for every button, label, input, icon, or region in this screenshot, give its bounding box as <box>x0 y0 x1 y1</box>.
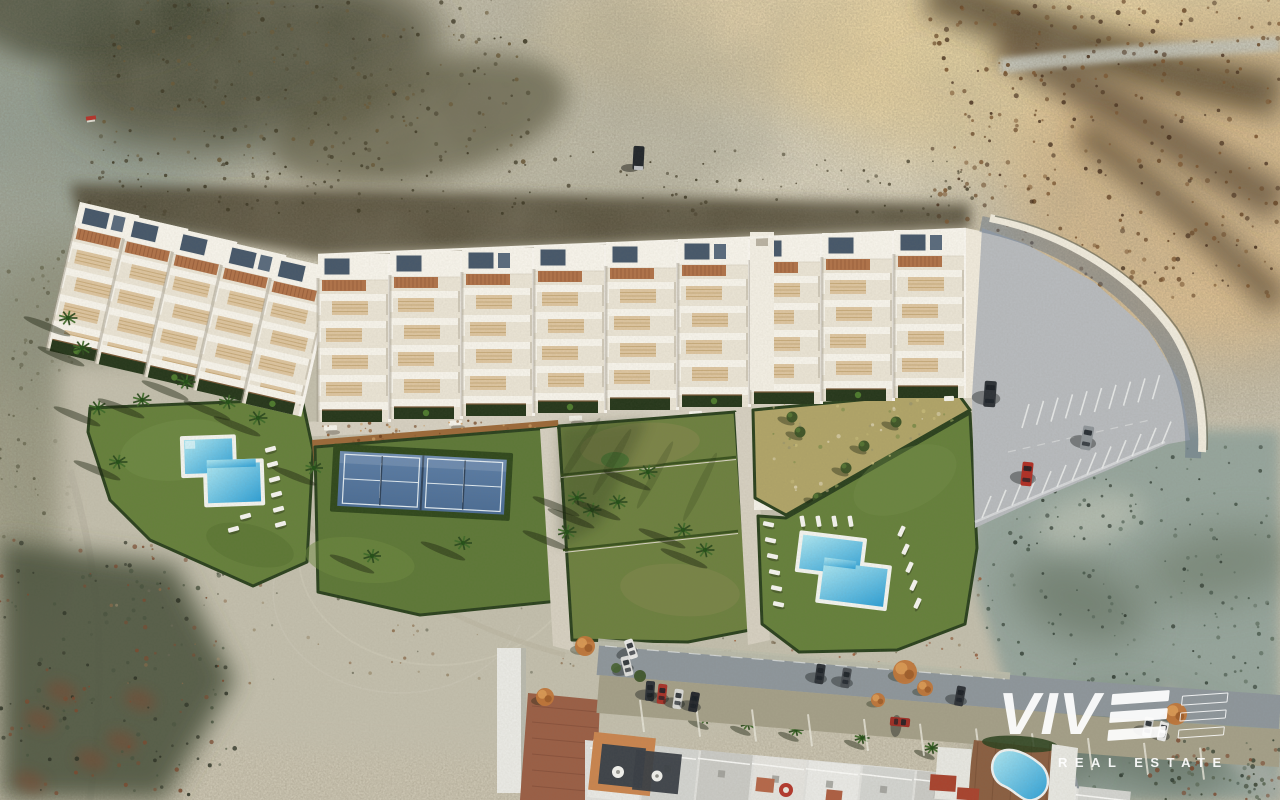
aerial-photo: VIV REAL ESTATE <box>0 0 1280 800</box>
brand-e-bars-icon <box>1107 690 1170 741</box>
brand-tagline: REAL ESTATE <box>1058 755 1229 770</box>
aerial-render-canvas <box>0 0 1280 800</box>
vive-watermark: VIV REAL ESTATE <box>998 684 1229 770</box>
brand-row: VIV <box>998 684 1229 746</box>
brand-wordmark: VIV <box>998 686 1101 745</box>
brand-e-outline-icon <box>1177 692 1228 738</box>
